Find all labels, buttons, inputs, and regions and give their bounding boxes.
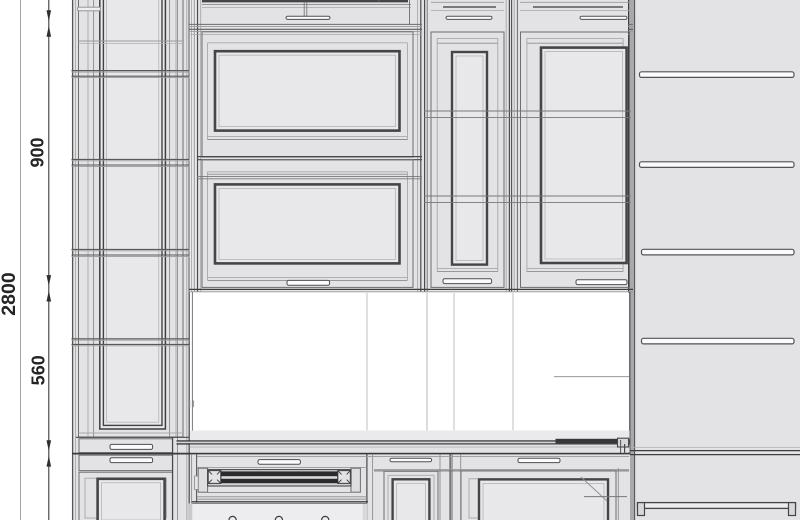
- svg-text:2800: 2800: [0, 272, 20, 316]
- svg-text:900: 900: [27, 137, 47, 167]
- svg-text:560: 560: [28, 355, 48, 385]
